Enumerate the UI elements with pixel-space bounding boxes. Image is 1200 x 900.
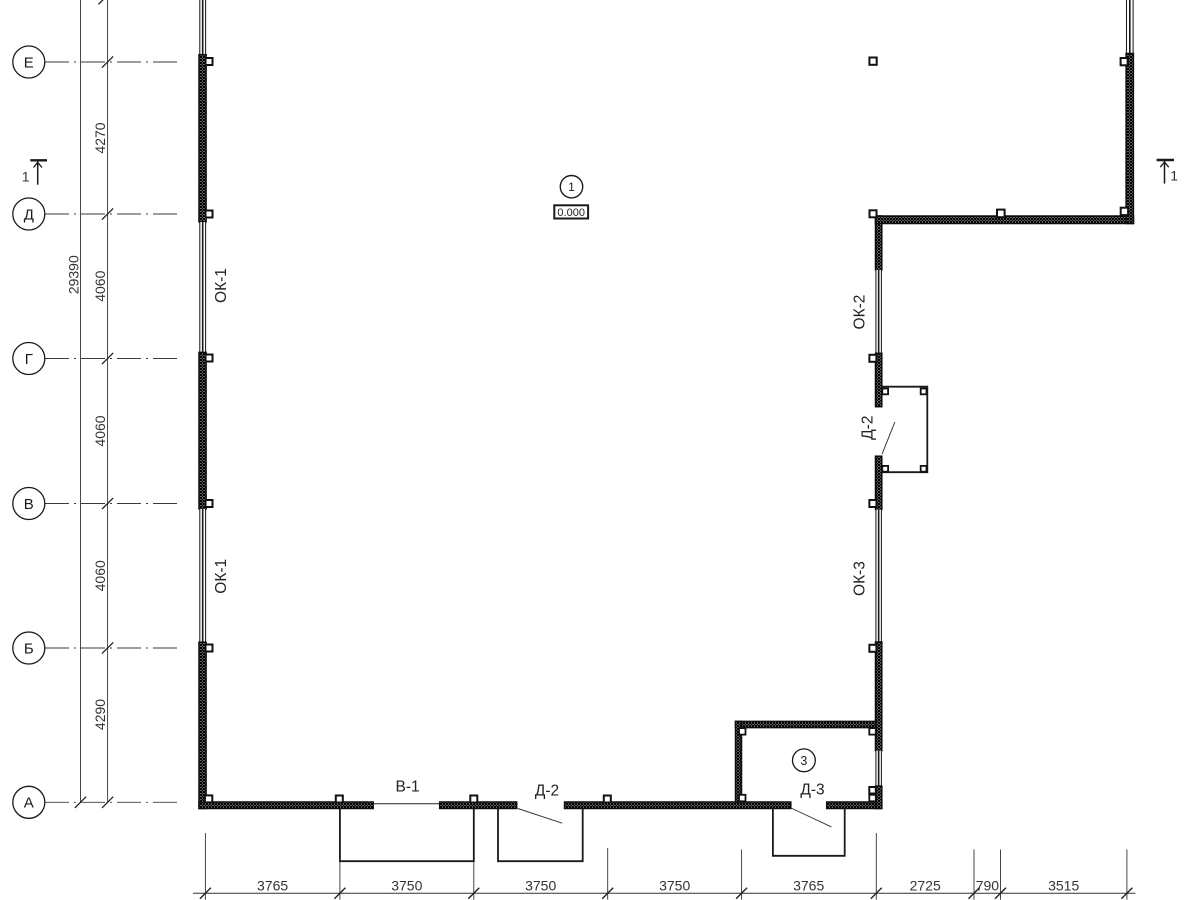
svg-text:ОК-1: ОК-1 [213, 268, 230, 303]
svg-text:1: 1 [1170, 168, 1178, 184]
svg-text:790: 790 [976, 877, 1000, 893]
svg-text:4060: 4060 [92, 560, 108, 591]
svg-text:3: 3 [800, 754, 807, 768]
svg-text:ОК-3: ОК-3 [851, 561, 868, 596]
svg-text:3750: 3750 [525, 877, 556, 893]
svg-text:ОК-1: ОК-1 [213, 559, 230, 594]
svg-text:В: В [24, 496, 34, 513]
svg-text:А: А [24, 795, 34, 812]
svg-text:29390: 29390 [65, 255, 81, 294]
svg-text:Е: Е [24, 54, 34, 71]
svg-text:Д: Д [24, 206, 34, 223]
svg-text:3765: 3765 [257, 877, 288, 893]
svg-text:4060: 4060 [92, 415, 108, 446]
svg-text:Г: Г [25, 351, 33, 368]
svg-text:Б: Б [24, 640, 34, 657]
svg-text:3750: 3750 [659, 877, 690, 893]
svg-text:Д-3: Д-3 [800, 781, 824, 798]
svg-text:0.000: 0.000 [557, 207, 585, 219]
svg-text:В-1: В-1 [396, 779, 420, 796]
svg-text:1: 1 [22, 169, 30, 185]
svg-text:2725: 2725 [910, 877, 941, 893]
svg-text:Д-2: Д-2 [859, 416, 876, 440]
svg-text:4290: 4290 [92, 699, 108, 730]
svg-text:3765: 3765 [793, 877, 824, 893]
svg-text:1: 1 [568, 180, 575, 194]
svg-text:ОК-2: ОК-2 [851, 295, 868, 330]
svg-text:Д-2: Д-2 [535, 782, 559, 799]
svg-text:3515: 3515 [1048, 877, 1079, 893]
svg-text:3750: 3750 [391, 877, 422, 893]
svg-text:4060: 4060 [92, 270, 108, 301]
svg-text:4270: 4270 [92, 122, 108, 153]
